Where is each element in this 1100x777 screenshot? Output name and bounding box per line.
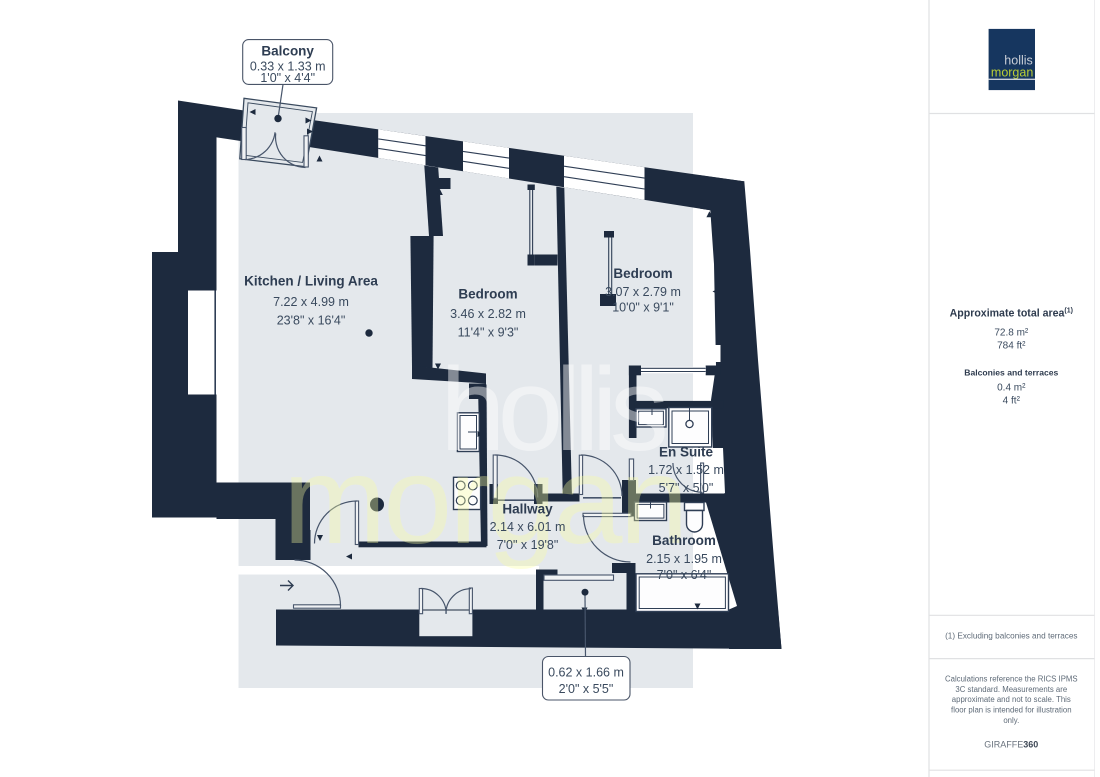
svg-text:23'8" x 16'4": 23'8" x 16'4" bbox=[277, 314, 346, 328]
svg-text:784 ft²: 784 ft² bbox=[997, 341, 1026, 352]
svg-text:morgan: morgan bbox=[283, 432, 685, 570]
svg-text:0.4 m²: 0.4 m² bbox=[997, 383, 1026, 394]
svg-text:morgan: morgan bbox=[991, 65, 1033, 79]
svg-text:3.07 x 2.79 m: 3.07 x 2.79 m bbox=[605, 285, 681, 299]
svg-text:7'0" x 19'8": 7'0" x 19'8" bbox=[497, 538, 559, 552]
svg-text:Bedroom: Bedroom bbox=[613, 266, 672, 281]
svg-text:approximate and not to scale.: approximate and not to scale. This bbox=[952, 695, 1071, 704]
svg-text:Hallway: Hallway bbox=[502, 502, 553, 517]
svg-text:0.62 x 1.66 m: 0.62 x 1.66 m bbox=[548, 666, 624, 680]
svg-text:2'0" x 5'5": 2'0" x 5'5" bbox=[559, 682, 614, 696]
svg-text:1.72 x 1.52 m: 1.72 x 1.52 m bbox=[648, 463, 724, 477]
svg-text:(1) Excluding balconies and te: (1) Excluding balconies and terraces bbox=[945, 632, 1077, 641]
svg-text:10'0" x 9'1": 10'0" x 9'1" bbox=[612, 301, 674, 315]
svg-text:only.: only. bbox=[1003, 716, 1019, 725]
svg-text:7.22 x 4.99 m: 7.22 x 4.99 m bbox=[273, 295, 349, 309]
svg-text:Approximate total area(1): Approximate total area(1) bbox=[950, 308, 1073, 320]
svg-text:2.15 x 1.95 m: 2.15 x 1.95 m bbox=[646, 552, 722, 566]
svg-text:1'0" x 4'4": 1'0" x 4'4" bbox=[260, 71, 315, 85]
svg-text:GIRAFFE360: GIRAFFE360 bbox=[984, 740, 1038, 750]
svg-text:Bedroom: Bedroom bbox=[458, 287, 517, 302]
svg-text:7'0" x 6'4": 7'0" x 6'4" bbox=[657, 568, 712, 582]
svg-text:Balcony: Balcony bbox=[261, 44, 314, 59]
svg-text:Balconies and terraces: Balconies and terraces bbox=[964, 368, 1058, 378]
svg-text:Kitchen / Living Area: Kitchen / Living Area bbox=[244, 274, 378, 289]
svg-text:Bathroom: Bathroom bbox=[652, 533, 716, 548]
svg-text:Calculations reference the RIC: Calculations reference the RICS IPMS bbox=[945, 675, 1078, 684]
svg-text:3.46 x 2.82 m: 3.46 x 2.82 m bbox=[450, 307, 526, 321]
svg-text:5'7" x 5'0": 5'7" x 5'0" bbox=[659, 481, 714, 495]
svg-text:2.14 x 6.01 m: 2.14 x 6.01 m bbox=[490, 520, 566, 534]
svg-text:floor plan is intended for ill: floor plan is intended for illustration bbox=[951, 706, 1072, 715]
svg-text:72.8 m²: 72.8 m² bbox=[994, 328, 1029, 339]
svg-text:4 ft²: 4 ft² bbox=[1003, 396, 1021, 407]
svg-text:En Suite: En Suite bbox=[659, 445, 713, 460]
svg-text:11'4" x 9'3": 11'4" x 9'3" bbox=[458, 326, 519, 340]
svg-text:3C standard. Measurements are: 3C standard. Measurements are bbox=[955, 685, 1067, 694]
